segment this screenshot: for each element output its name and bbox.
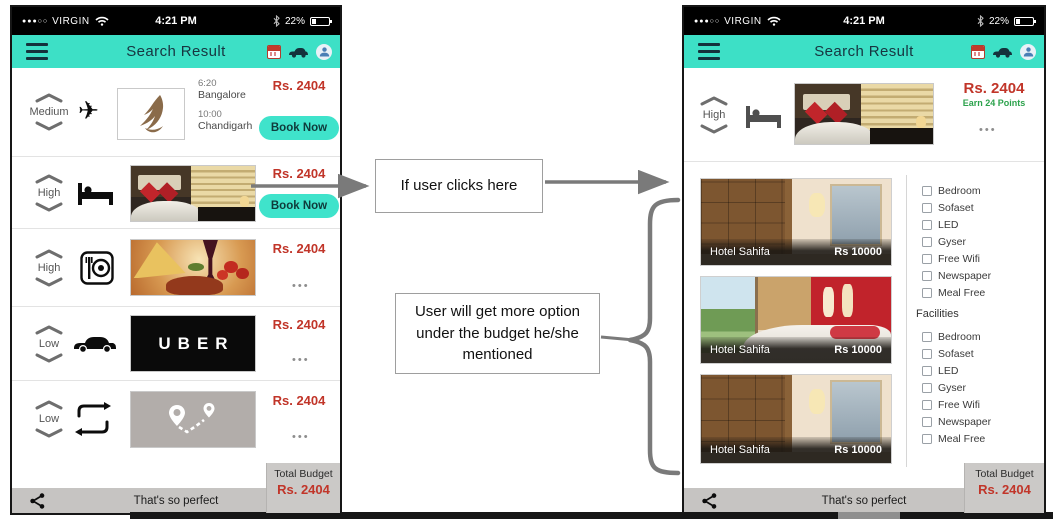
checkbox-gyser[interactable]: Gyser xyxy=(922,381,966,395)
priority-label: High xyxy=(38,187,61,199)
annotation-click-text: If user clicks here xyxy=(401,175,518,197)
checkbox[interactable] xyxy=(922,400,932,410)
book-now-button[interactable]: Book Now xyxy=(259,194,339,218)
checkbox-newspaper[interactable]: Newspaper xyxy=(922,415,991,429)
annotation-click-note: If user clicks here xyxy=(375,159,543,213)
checkbox-sofaset[interactable]: Sofaset xyxy=(922,347,974,361)
chevron-up-icon[interactable] xyxy=(34,400,64,410)
row-price: Rs. 2404 xyxy=(260,393,338,408)
battery-percent: 22% xyxy=(285,16,305,27)
hotel-card-caption: Hotel Sahifa Rs 10000 xyxy=(701,337,891,363)
checkbox-label: LED xyxy=(938,365,958,377)
battery-icon xyxy=(310,17,330,26)
hotel-name: Hotel Sahifa xyxy=(710,444,770,456)
checkbox-gyser[interactable]: Gyser xyxy=(922,235,966,249)
row-price: Rs. 2404 xyxy=(260,78,338,93)
chevron-down-icon[interactable] xyxy=(34,428,64,438)
checkbox[interactable] xyxy=(922,417,932,427)
result-row-hotel[interactable]: High Rs. 2404 Book Now xyxy=(12,157,340,229)
checkbox-label: Sofaset xyxy=(938,348,974,360)
hotel-photo[interactable] xyxy=(794,83,934,145)
arrive-city: Chandigarh xyxy=(198,120,252,132)
profile-icon[interactable] xyxy=(316,44,332,60)
priority-label: Medium xyxy=(29,106,68,118)
checkbox[interactable] xyxy=(922,220,932,230)
chevron-down-icon[interactable] xyxy=(699,124,729,134)
car-icon[interactable] xyxy=(288,45,309,58)
checkbox-meal-free[interactable]: Meal Free xyxy=(922,286,985,300)
checkbox[interactable] xyxy=(922,332,932,342)
checkbox-free-wifi[interactable]: Free Wifi xyxy=(922,398,980,412)
earn-points-label: Earn 24 Points xyxy=(948,98,1040,108)
checkbox-label: Sofaset xyxy=(938,202,974,214)
checkbox[interactable] xyxy=(922,203,932,213)
phone-left: ●●●○○ VIRGIN 4:21 PM 22% Search Result xyxy=(10,5,342,515)
checkbox-label: LED xyxy=(938,219,958,231)
total-budget-value: Rs. 2404 xyxy=(277,482,330,497)
depart-city: Bangalore xyxy=(198,89,252,101)
checkbox-label: Newspaper xyxy=(938,270,991,282)
bluetooth-icon xyxy=(273,15,280,27)
checkbox-label: Gyser xyxy=(938,382,966,394)
flight-icon: ✈ xyxy=(78,96,99,126)
more-options-button[interactable]: ••• xyxy=(979,124,997,136)
checkbox-led[interactable]: LED xyxy=(922,364,958,378)
total-budget-value: Rs. 2404 xyxy=(978,482,1031,497)
priority-stepper[interactable]: High xyxy=(20,229,78,306)
checkbox-label: Free Wifi xyxy=(938,253,980,265)
annotation-options-note: User will get more option under the budg… xyxy=(395,293,600,374)
priority-stepper[interactable]: High xyxy=(20,157,78,228)
chevron-down-icon[interactable] xyxy=(34,202,64,212)
row-price: Rs. 2404 xyxy=(260,317,338,332)
checkbox-label: Meal Free xyxy=(938,433,985,445)
hotel-name: Hotel Sahifa xyxy=(710,246,770,258)
battery-icon xyxy=(1014,17,1034,26)
more-options-button[interactable]: ••• xyxy=(292,280,310,292)
chevron-up-icon[interactable] xyxy=(34,93,64,103)
chevron-down-icon[interactable] xyxy=(34,121,64,131)
hotel-card[interactable]: Hotel Sahifa Rs 10000 xyxy=(700,276,892,364)
priority-label: High xyxy=(38,262,61,274)
checkbox-label: Bedroom xyxy=(938,331,981,343)
checkbox[interactable] xyxy=(922,254,932,264)
priority-stepper[interactable]: High xyxy=(688,68,740,161)
checkbox[interactable] xyxy=(922,271,932,281)
checkbox-label: Gyser xyxy=(938,236,966,248)
priority-label: Low xyxy=(39,413,59,425)
chevron-down-icon[interactable] xyxy=(34,353,64,363)
priority-stepper[interactable]: Low xyxy=(20,307,78,380)
priority-stepper[interactable]: Medium xyxy=(20,68,78,156)
checkbox-free-wifi[interactable]: Free Wifi xyxy=(922,252,980,266)
priority-label: Low xyxy=(39,338,59,350)
row-price: Rs. 2404 xyxy=(948,80,1040,97)
result-row-flight[interactable]: Medium ✈ 6:20 Bangalore 10:00 Chandigarh… xyxy=(12,68,340,157)
status-bar: ●●●○○ VIRGIN 4:21 PM 22% xyxy=(12,7,340,35)
bluetooth-icon xyxy=(977,15,984,27)
priority-label: High xyxy=(703,109,726,121)
airline-logo[interactable] xyxy=(117,88,185,140)
phone-right: ●●●○○ VIRGIN 4:21 PM 22% Search Result xyxy=(682,5,1046,515)
hotel-price: Rs 10000 xyxy=(834,246,882,258)
hotel-name: Hotel Sahifa xyxy=(710,344,770,356)
car-icon[interactable] xyxy=(992,45,1013,58)
window-bottom-edge xyxy=(130,512,1053,519)
annotation-options-text: User will get more option under the budg… xyxy=(408,301,587,366)
priority-stepper[interactable]: Low xyxy=(20,381,78,457)
profile-icon[interactable] xyxy=(1020,44,1036,60)
checkbox-bedroom[interactable]: Bedroom xyxy=(922,184,981,198)
hotel-card-caption: Hotel Sahifa Rs 10000 xyxy=(701,437,891,463)
swap-icon xyxy=(74,401,112,437)
result-row-cab[interactable]: Low UBER Rs. 2404 ••• xyxy=(12,307,340,381)
checkbox-sofaset[interactable]: Sofaset xyxy=(922,201,974,215)
status-bar: ●●●○○ VIRGIN 4:21 PM 22% xyxy=(684,7,1044,35)
chevron-up-icon[interactable] xyxy=(34,174,64,184)
arrive-time: 10:00 xyxy=(198,109,252,120)
route-map-thumbnail[interactable] xyxy=(130,391,256,448)
total-budget-label: Total Budget xyxy=(274,468,332,480)
checkbox[interactable] xyxy=(922,383,932,393)
hotel-price: Rs 10000 xyxy=(834,344,882,356)
app-header: Search Result xyxy=(12,35,340,68)
curly-brace xyxy=(630,200,678,473)
result-row-route[interactable]: Low Rs. 2404 ••• xyxy=(12,381,340,457)
calendar-icon[interactable] xyxy=(971,45,985,59)
bed-icon xyxy=(744,104,784,130)
facilities-heading: Facilities xyxy=(916,308,959,320)
hotel-card[interactable]: Hotel Sahifa Rs 10000 xyxy=(700,178,892,266)
chevron-up-icon[interactable] xyxy=(34,325,64,335)
wireframe-canvas: ●●●○○ VIRGIN 4:21 PM 22% Search Result xyxy=(0,0,1053,521)
row-price: Rs. 2404 xyxy=(260,166,338,181)
map-pins-icon xyxy=(163,403,223,437)
row-price: Rs. 2404 xyxy=(260,241,338,256)
more-options-button[interactable]: ••• xyxy=(292,431,310,443)
result-row-restaurant[interactable]: High Rs. 2404 ••• xyxy=(12,229,340,307)
hotel-photo[interactable] xyxy=(130,165,256,222)
checkbox-newspaper[interactable]: Newspaper xyxy=(922,269,991,283)
battery-percent: 22% xyxy=(989,16,1009,27)
hotel-card[interactable]: Hotel Sahifa Rs 10000 xyxy=(700,374,892,464)
checkbox[interactable] xyxy=(922,349,932,359)
checkbox[interactable] xyxy=(922,237,932,247)
food-photo[interactable] xyxy=(130,239,256,296)
uber-logo[interactable]: UBER xyxy=(130,315,256,372)
column-divider xyxy=(906,175,907,467)
calendar-icon[interactable] xyxy=(267,45,281,59)
uber-wordmark: UBER xyxy=(131,316,255,371)
checkbox-label: Bedroom xyxy=(938,185,981,197)
total-budget-label: Total Budget xyxy=(975,468,1033,480)
checkbox[interactable] xyxy=(922,288,932,298)
book-now-button[interactable]: Book Now xyxy=(259,116,339,140)
restaurant-icon xyxy=(80,251,114,285)
checkbox-meal-free[interactable]: Meal Free xyxy=(922,432,985,446)
checkbox-label: Free Wifi xyxy=(938,399,980,411)
checkbox-led[interactable]: LED xyxy=(922,218,958,232)
total-budget-box: Total Budget Rs. 2404 xyxy=(266,463,340,513)
checkbox-label: Meal Free xyxy=(938,287,985,299)
chevron-up-icon[interactable] xyxy=(699,96,729,106)
hotel-price: Rs 10000 xyxy=(834,444,882,456)
brace-connector-line xyxy=(601,337,634,340)
taxi-icon xyxy=(72,333,118,354)
total-budget-box: Total Budget Rs. 2404 xyxy=(964,463,1044,513)
app-header: Search Result xyxy=(684,35,1044,68)
checkbox[interactable] xyxy=(922,186,932,196)
hotel-card-caption: Hotel Sahifa Rs 10000 xyxy=(701,239,891,265)
more-options-button[interactable]: ••• xyxy=(292,354,310,366)
chevron-up-icon[interactable] xyxy=(34,249,64,259)
expanded-hotel-row[interactable]: High Rs. 2404 Earn 24 Points ••• xyxy=(684,68,1044,162)
checkbox[interactable] xyxy=(922,434,932,444)
chevron-down-icon[interactable] xyxy=(34,277,64,287)
checkbox[interactable] xyxy=(922,366,932,376)
depart-time: 6:20 xyxy=(198,78,252,89)
bed-icon xyxy=(76,181,116,207)
checkbox-label: Newspaper xyxy=(938,416,991,428)
flight-details: 6:20 Bangalore 10:00 Chandigarh xyxy=(198,78,252,140)
checkbox-bedroom[interactable]: Bedroom xyxy=(922,330,981,344)
